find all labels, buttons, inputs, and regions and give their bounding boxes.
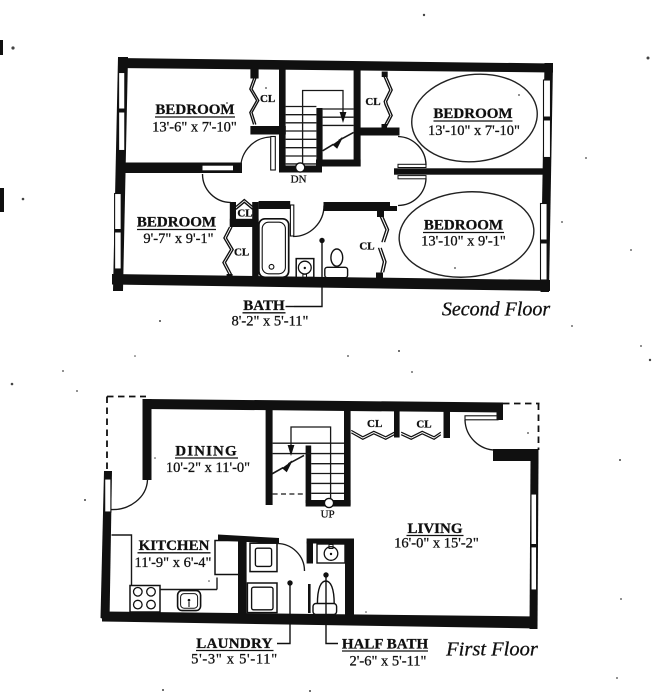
svg-text:CL: CL xyxy=(359,241,374,253)
svg-text:CL: CL xyxy=(237,208,252,220)
svg-text:16'-0" x 15'-2": 16'-0" x 15'-2" xyxy=(394,536,479,552)
svg-text:CL: CL xyxy=(234,246,249,258)
svg-text:BEDROOM: BEDROOM xyxy=(137,215,216,231)
svg-text:BEDROOM: BEDROOM xyxy=(433,106,512,122)
svg-text:5'-3" x 5'-11": 5'-3" x 5'-11" xyxy=(191,652,278,668)
svg-text:CL: CL xyxy=(416,418,431,430)
svg-text:BATH: BATH xyxy=(243,298,285,314)
svg-text:LAUNDRY: LAUNDRY xyxy=(196,636,273,652)
svg-text:HALF BATH: HALF BATH xyxy=(342,637,429,653)
svg-text:DINING: DINING xyxy=(175,444,237,460)
svg-text:CL: CL xyxy=(367,418,382,430)
svg-text:2'-6" x 5'-11": 2'-6" x 5'-11" xyxy=(350,654,427,670)
svg-text:UP: UP xyxy=(321,509,335,521)
svg-text:8'-2" x 5'-11": 8'-2" x 5'-11" xyxy=(232,314,309,330)
svg-text:CL: CL xyxy=(260,93,275,105)
svg-text:DN: DN xyxy=(291,174,307,186)
svg-text:13'-10" x 7'-10": 13'-10" x 7'-10" xyxy=(428,123,520,139)
svg-text:BEDROOM: BEDROOM xyxy=(424,218,503,234)
svg-text:KITCHEN: KITCHEN xyxy=(139,538,210,554)
svg-text:CL: CL xyxy=(365,96,380,108)
svg-text:10'-2" x 11'-0": 10'-2" x 11'-0" xyxy=(166,460,250,476)
svg-text:13'-10" x 9'-1": 13'-10" x 9'-1" xyxy=(421,234,506,250)
svg-text:BEDROOM: BEDROOM xyxy=(155,102,234,118)
svg-text:First Floor: First Floor xyxy=(445,639,539,661)
svg-text:13'-6" x 7'-10": 13'-6" x 7'-10" xyxy=(152,120,237,136)
svg-text:11'-9" x 6'-4": 11'-9" x 6'-4" xyxy=(135,555,212,571)
svg-text:Second Floor: Second Floor xyxy=(442,299,551,321)
svg-text:9'-7" x 9'-1": 9'-7" x 9'-1" xyxy=(143,231,213,247)
